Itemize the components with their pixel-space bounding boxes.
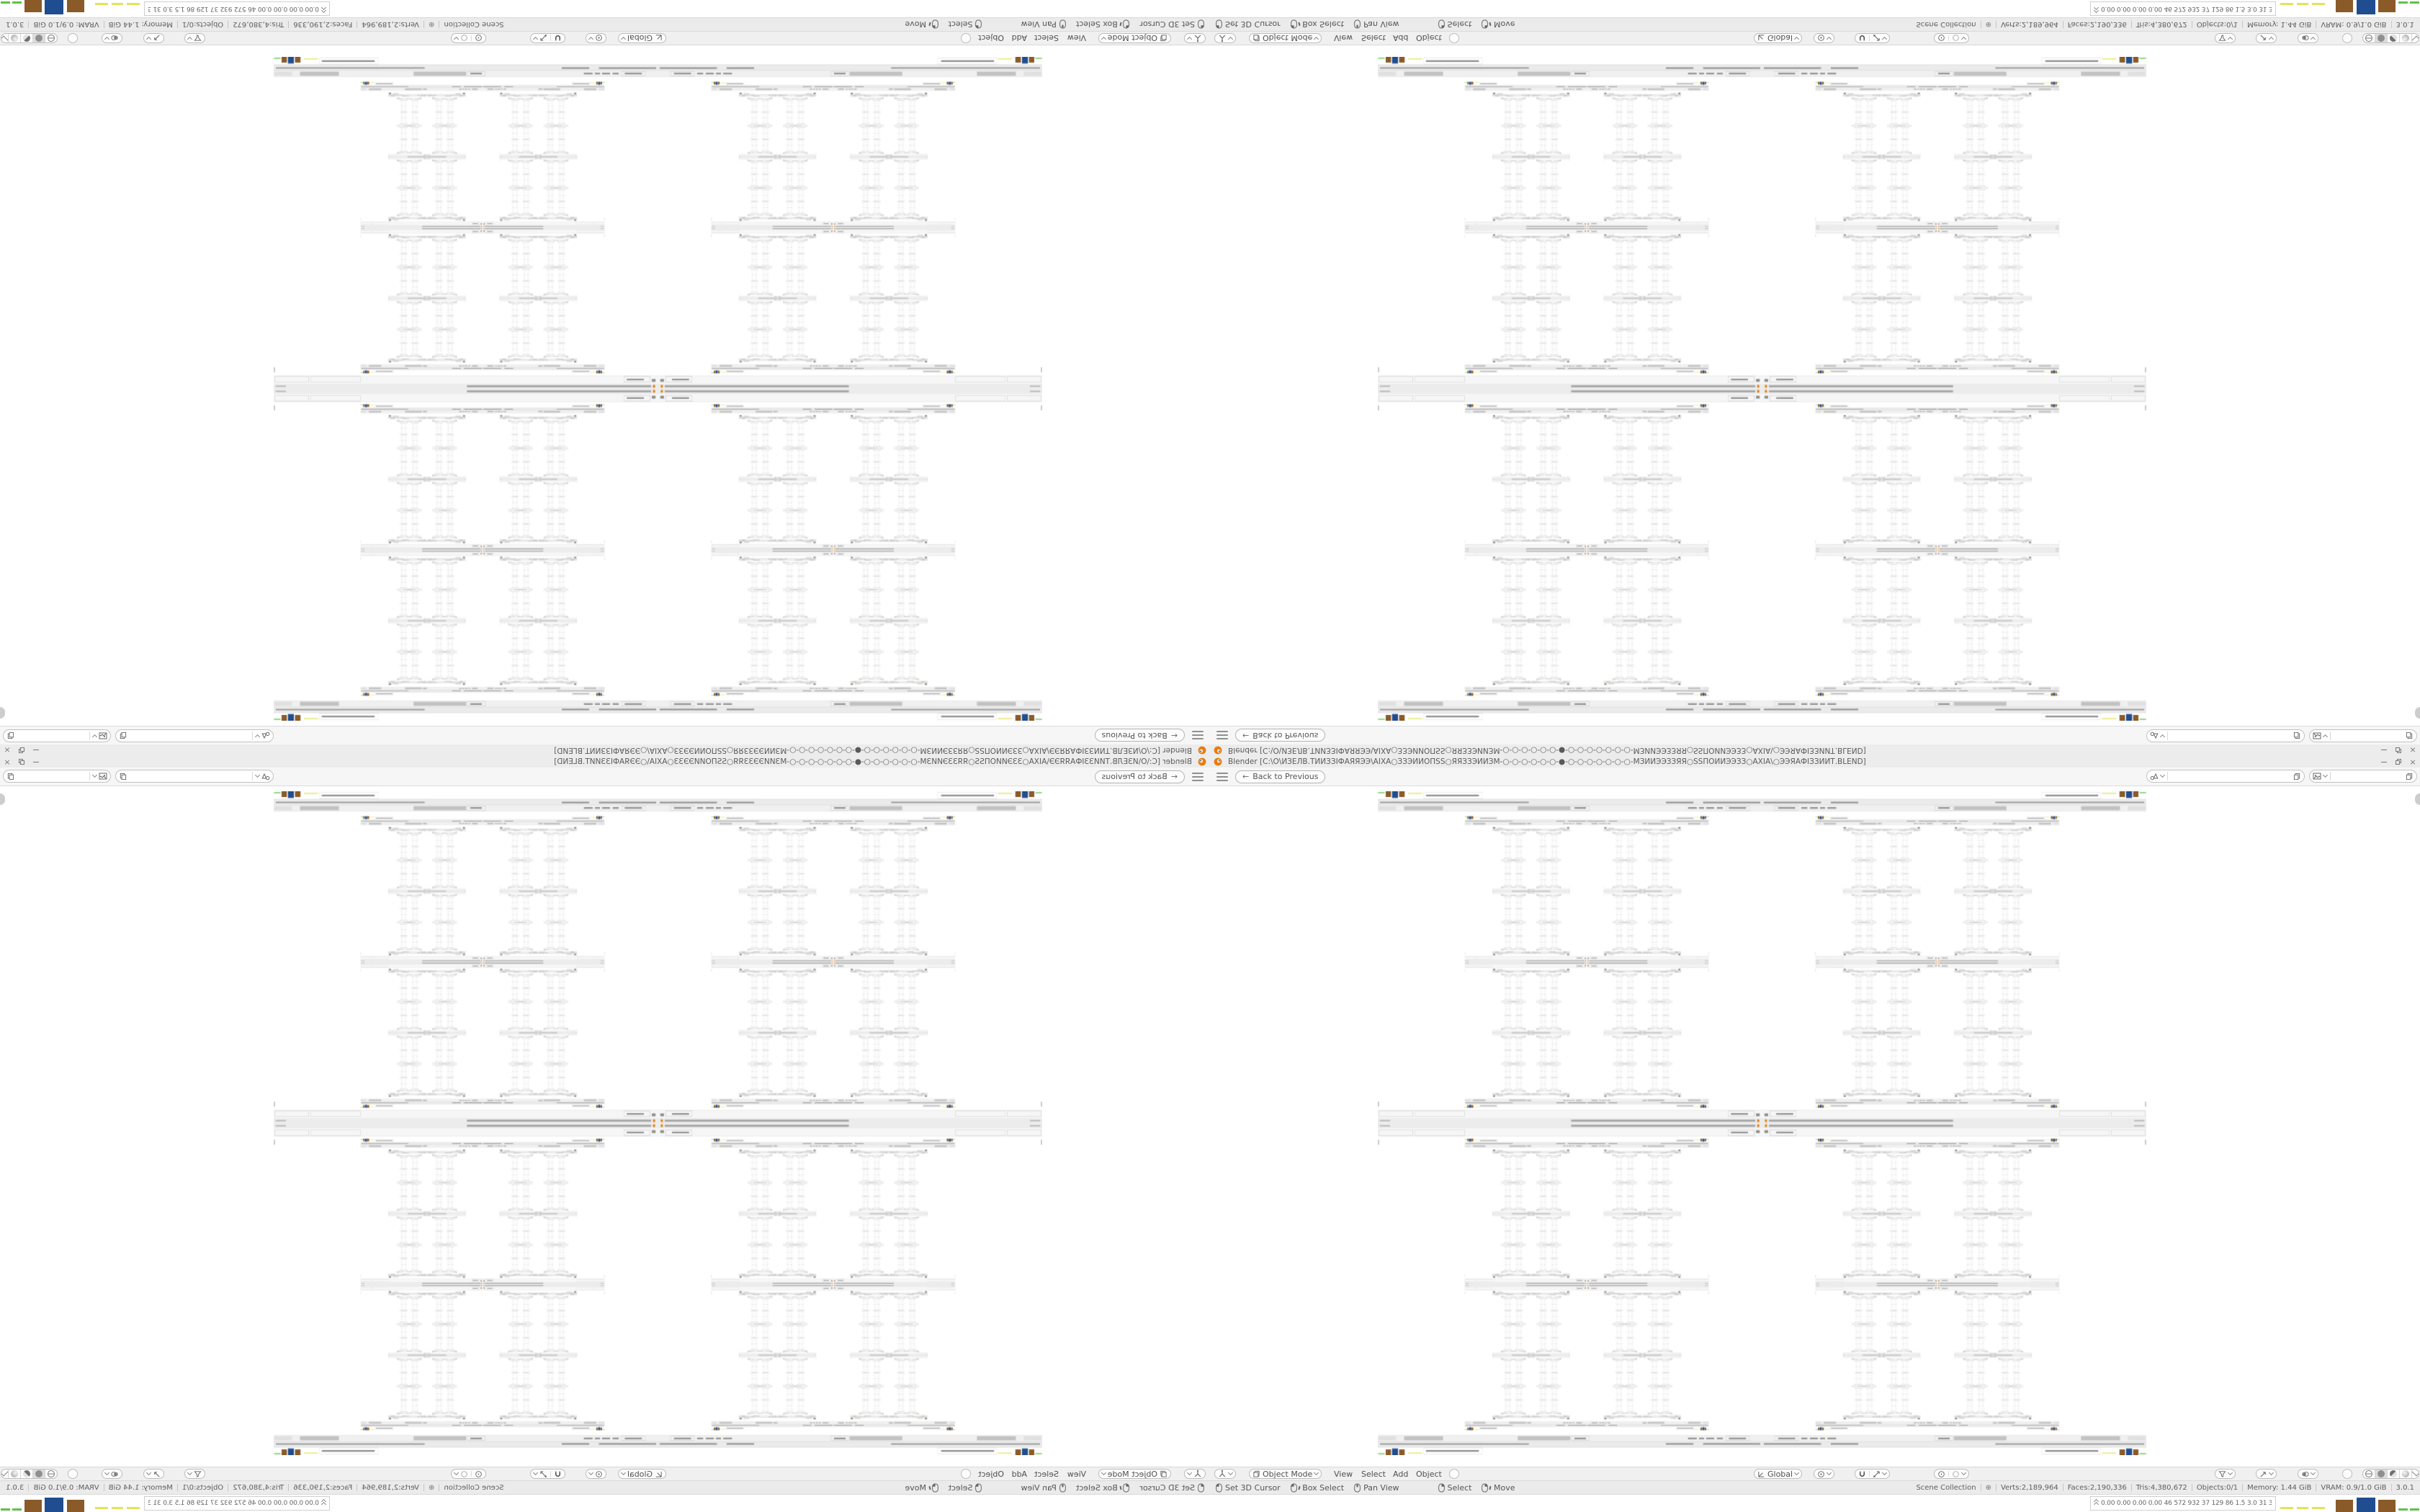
viewport-3d[interactable]	[0, 786, 1210, 1467]
hint-pan-view: Pan View	[1354, 20, 1399, 30]
menu-hamburger-icon[interactable]	[1216, 773, 1228, 781]
sidebar-collapsed-tab[interactable]	[2415, 707, 2420, 719]
status-bar: Set 3D Cursor Box Select Pan View Select	[0, 1480, 1210, 1494]
kaleidoscope-page: Blender [C:\O\ИЗЕЛВ.ТИИЗЗІФАЯЯЭЭ\АІХА○ЗЗ…	[0, 0, 2420, 1512]
xray-toggle[interactable]	[68, 1469, 78, 1479]
pivot-icon	[595, 35, 603, 42]
minimize-icon	[2381, 762, 2387, 762]
viewport-3d[interactable]	[1210, 786, 2420, 1467]
show-gizmos-dropdown[interactable]	[2256, 33, 2277, 43]
restore-button[interactable]	[2391, 745, 2406, 755]
taskbar-yellow-mark	[2312, 3, 2325, 5]
menu-object[interactable]: Object	[1416, 33, 1442, 42]
menu-object[interactable]: Object	[978, 1470, 1004, 1479]
hint-pan-view: Pan View	[1021, 1483, 1065, 1493]
annotation-circle-button[interactable]	[1449, 33, 1459, 43]
taskbar-app-icon[interactable]	[2336, 0, 2353, 12]
system-monitor-numbers: 0.00 0.00 0.00 0.00 46 572 932 37 129 86…	[2101, 5, 2272, 12]
chevron-down-icon	[1101, 1470, 1106, 1475]
chevron-down-icon	[454, 1470, 459, 1475]
taskbar-app-icon[interactable]	[2357, 0, 2375, 14]
stat-tris: Tris:4,380,672	[2136, 21, 2187, 29]
stat-memory: Memory: 1.44 GiB	[2247, 1484, 2311, 1492]
chevron-down-icon[interactable]	[2412, 36, 2419, 43]
taskbar-green-mark	[12, 1508, 22, 1511]
mode-dropdown[interactable]: Object Mode	[1098, 33, 1171, 43]
show-overlays-dropdown[interactable]	[102, 1469, 122, 1479]
minimize-button[interactable]	[2377, 757, 2391, 767]
snapping-group[interactable]	[530, 1469, 565, 1479]
drag-tick-icon	[1298, 1485, 1300, 1489]
stat-verts: Verts:2,189,964	[362, 21, 419, 29]
snapping-group[interactable]	[1855, 33, 1890, 43]
close-button[interactable]: ×	[2406, 745, 2420, 755]
proportional-editing-icon	[475, 35, 483, 42]
drag-tick-icon	[1120, 22, 1122, 26]
material-sphere-icon	[2390, 35, 2397, 42]
menu-view[interactable]: View	[1334, 1470, 1353, 1479]
shading-material-button[interactable]	[2388, 33, 2400, 43]
object-mode-icon	[1160, 1470, 1168, 1478]
scene-icon	[2150, 732, 2159, 740]
menu-select[interactable]: Select	[1361, 33, 1386, 42]
proportional-editing-group[interactable]	[1934, 1469, 1969, 1479]
rendered-sphere-icon	[2402, 35, 2409, 42]
mouse-right-drag-icon	[932, 1483, 938, 1493]
viewport-editor-icon	[1218, 1470, 1227, 1478]
chevron-down-icon	[1961, 1470, 1966, 1475]
view-layer-icon	[2313, 732, 2321, 740]
recursive-screenshot-pattern	[1378, 791, 2146, 1455]
back-arrow-icon: ←	[1242, 731, 1249, 740]
xray-toggle[interactable]	[2342, 33, 2352, 43]
view-object-types-dropdown[interactable]	[184, 1469, 205, 1479]
copy-icon[interactable]	[119, 773, 127, 780]
chevron-down-icon	[104, 1470, 109, 1475]
system-monitor-numbers: 0.00 0.00 0.00 0.00 46 572 932 37 129 86…	[148, 1500, 319, 1507]
quadrant-bottom-left-mirrored: Blender [C:\O\ИЗЕЛВ.ТИИЗЗІФАЯЯЭЭ\АІХА○ЗЗ…	[0, 756, 1210, 1512]
system-monitor-numbers: 0.00 0.00 0.00 0.00 46 572 932 37 129 86…	[148, 5, 319, 12]
shading-material-button[interactable]	[20, 33, 32, 43]
rendered-sphere-icon	[11, 1470, 18, 1477]
menu-select[interactable]: Select	[1034, 1470, 1059, 1479]
sidebar-collapsed-tab[interactable]	[0, 793, 5, 805]
double-chevron-up-icon[interactable]	[322, 1501, 326, 1506]
chevron-down-icon	[2228, 1470, 2233, 1475]
stat-scene-collection: Scene Collection	[444, 1484, 503, 1492]
snap-target-icon	[539, 1470, 547, 1478]
chevron-down-icon	[1961, 37, 1966, 42]
material-sphere-icon	[23, 35, 30, 42]
chevron-down-icon	[2323, 773, 2328, 778]
shading-wireframe-button[interactable]	[45, 33, 57, 43]
taskbar-green-mark	[2410, 1508, 2419, 1511]
view-object-types-dropdown[interactable]	[184, 33, 205, 43]
restore-button[interactable]	[14, 757, 29, 767]
show-gizmos-dropdown[interactable]	[143, 1469, 164, 1479]
scene-selector[interactable]	[2146, 729, 2305, 742]
taskbar-green-mark	[2398, 1, 2408, 4]
chevron-down-icon	[621, 1470, 626, 1475]
chevron-down-icon	[255, 734, 260, 739]
viewport-header: Object Mode View Select Add Object Globa…	[1210, 1467, 2420, 1480]
blender-logo-icon	[1198, 757, 1206, 766]
shading-rendered-button[interactable]	[8, 33, 20, 43]
chevron-down-icon	[2311, 1470, 2316, 1475]
sidebar-collapsed-tab[interactable]	[0, 707, 5, 719]
title-bar: Blender [C:\O\ИЗЕЛВ.ТИИЗЗІФАЯЯЭЭ\АІХА○ЗЗ…	[0, 756, 1210, 768]
taskbar-app-icon[interactable]	[45, 1498, 63, 1512]
menu-view[interactable]: View	[1334, 33, 1353, 42]
show-overlays-dropdown[interactable]	[102, 33, 122, 43]
editor-type-dropdown[interactable]	[1184, 33, 1206, 43]
system-monitor-panel: 0.00 0.00 0.00 0.00 46 572 932 37 129 86…	[2090, 1496, 2276, 1511]
magnet-icon	[554, 1470, 562, 1478]
pivot-icon	[595, 1470, 603, 1478]
minimize-button[interactable]	[29, 757, 43, 767]
chevron-down-icon	[1882, 37, 1887, 42]
taskbar-green-mark	[1, 1, 10, 4]
shading-rendered-button[interactable]	[8, 1469, 20, 1479]
mouse-right-icon	[975, 1483, 982, 1493]
mouse-right-drag-icon	[1482, 1483, 1488, 1493]
copy-icon[interactable]	[2293, 773, 2301, 780]
view-object-types-dropdown[interactable]	[2215, 1469, 2236, 1479]
mode-dropdown[interactable]: Object Mode	[1249, 1469, 1322, 1479]
taskbar-green-mark	[2398, 1508, 2408, 1511]
magnet-icon	[1858, 1470, 1866, 1478]
overlays-icon	[2301, 35, 2309, 42]
mode-dropdown[interactable]: Object Mode	[1098, 1469, 1171, 1479]
chevron-down-icon	[1187, 37, 1192, 42]
copy-icon[interactable]	[2293, 732, 2301, 740]
back-to-previous-button[interactable]: ← Back to Previous	[1235, 770, 1325, 783]
taskbar-app-icon[interactable]	[45, 0, 63, 14]
back-to-previous-label: Back to Previous	[1252, 731, 1318, 740]
stat-vram: VRAM: 0.9/1.0 GiB	[2321, 1484, 2386, 1492]
snapping-group[interactable]	[1855, 1469, 1890, 1479]
orientation-label: Global	[627, 1470, 653, 1479]
scene-selector[interactable]	[2146, 770, 2305, 783]
object-mode-icon	[1160, 35, 1168, 42]
menu-object[interactable]: Object	[1416, 1470, 1442, 1479]
scene-stats: Scene Collection ⊕ Verts:2,189,964 Faces…	[1916, 21, 2414, 29]
taskbar-app-icon[interactable]	[24, 1500, 42, 1512]
chevron-down-icon	[92, 734, 97, 739]
hint-select: Select	[949, 20, 982, 30]
close-button[interactable]: ×	[0, 757, 14, 767]
menu-view[interactable]: View	[1067, 1470, 1086, 1479]
filter-funnel-icon	[194, 35, 202, 42]
close-button[interactable]: ×	[0, 745, 14, 755]
transform-orientation-dropdown[interactable]: Global	[1754, 1469, 1802, 1479]
chevron-down-icon[interactable]	[1, 1470, 9, 1477]
taskbar-app-icon[interactable]	[67, 1500, 84, 1512]
double-chevron-up-icon[interactable]	[2094, 1501, 2098, 1506]
annotation-circle-button[interactable]	[1449, 1469, 1459, 1479]
chevron-down-icon	[2228, 37, 2233, 42]
shading-material-button[interactable]	[2388, 1469, 2400, 1479]
hint-select: Select	[1438, 20, 1472, 30]
menu-add[interactable]: Add	[1012, 33, 1027, 42]
snapping-group[interactable]	[530, 33, 565, 43]
menu-add[interactable]: Add	[1393, 33, 1408, 42]
stat-scene-collection: Scene Collection	[1916, 21, 1976, 29]
annotation-circle-button[interactable]	[961, 33, 971, 43]
view-object-types-dropdown[interactable]	[2215, 33, 2236, 43]
show-overlays-dropdown[interactable]	[2298, 33, 2318, 43]
proportional-editing-group[interactable]	[451, 1469, 486, 1479]
hint-select: Select	[1438, 1483, 1472, 1493]
scene-selector[interactable]	[115, 729, 274, 742]
back-to-previous-button[interactable]: ← Back to Previous	[1095, 770, 1185, 783]
chevron-down-icon	[255, 773, 260, 778]
chevron-down-icon	[92, 773, 97, 778]
topbar: ← Back to Previous	[0, 726, 1210, 744]
viewport-editor-icon	[1193, 34, 1202, 42]
double-chevron-up-icon[interactable]	[2094, 6, 2098, 12]
minimize-button[interactable]	[2377, 745, 2391, 755]
copy-icon[interactable]	[2406, 773, 2414, 780]
taskbar-app-icon[interactable]	[2378, 1500, 2396, 1512]
mode-dropdown[interactable]: Object Mode	[1249, 33, 1322, 43]
hint-move: Move	[1482, 1483, 1515, 1493]
shading-wireframe-button[interactable]	[2363, 1469, 2375, 1479]
proportional-editing-icon	[475, 1470, 483, 1478]
restore-icon	[2396, 747, 2401, 753]
chevron-down-icon	[1228, 37, 1233, 42]
blender-logo-icon	[1214, 746, 1222, 755]
editor-type-dropdown[interactable]	[1214, 33, 1236, 43]
scene-stats: Scene Collection ⊕ Verts:2,189,964 Faces…	[1916, 1484, 2414, 1492]
snap-target-icon	[1873, 35, 1881, 42]
view-layer-name-field[interactable]	[17, 771, 86, 781]
stat-scene-collection: Scene Collection	[444, 21, 503, 29]
back-to-previous-button[interactable]: ← Back to Previous	[1235, 729, 1325, 742]
show-gizmos-dropdown[interactable]	[2256, 1469, 2277, 1479]
sidebar-collapsed-tab[interactable]	[2415, 793, 2420, 805]
view-layer-icon	[2313, 772, 2321, 780]
editor-type-dropdown[interactable]	[1184, 1469, 1206, 1479]
menu-view[interactable]: View	[1067, 33, 1086, 42]
restore-button[interactable]	[14, 745, 29, 755]
falloff-icon	[1952, 1470, 1960, 1478]
mouse-middle-icon	[1059, 20, 1066, 30]
shading-solid-button[interactable]	[32, 1469, 45, 1479]
stat-verts: Verts:2,189,964	[2001, 21, 2058, 29]
shading-rendered-button[interactable]	[2400, 33, 2412, 43]
stat-memory: Memory: 1.44 GiB	[2247, 21, 2311, 29]
drag-tick-icon	[1120, 1485, 1122, 1489]
double-chevron-up-icon[interactable]	[322, 6, 326, 12]
xray-toggle[interactable]	[68, 33, 78, 43]
xray-toggle[interactable]	[2342, 1469, 2352, 1479]
pivot-point-dropdown[interactable]	[1814, 1469, 1834, 1479]
taskbar-yellow-mark	[2297, 1507, 2308, 1509]
scene-name-field[interactable]	[2171, 771, 2291, 781]
copy-icon[interactable]	[6, 773, 14, 780]
copy-icon[interactable]	[2406, 732, 2414, 740]
proportional-editing-group[interactable]	[1934, 33, 1969, 43]
title-bar: Blender [C:\O\ИЗЕЛВ.ТИИЗЗІФАЯЯЭЭ\АІХА○ЗЗ…	[1210, 756, 2420, 768]
view-layer-selector[interactable]	[2309, 770, 2417, 783]
chevron-down-icon	[621, 37, 626, 42]
stat-faces: Faces:2,190,336	[2068, 1484, 2127, 1492]
material-sphere-icon	[23, 1470, 30, 1477]
mouse-right-icon	[1438, 1483, 1445, 1493]
scene-name-field[interactable]	[2171, 731, 2291, 741]
overlays-icon	[111, 35, 119, 42]
taskbar-yellow-mark	[112, 3, 123, 5]
view-layer-selector[interactable]	[3, 729, 111, 742]
shading-solid-button[interactable]	[2375, 1469, 2388, 1479]
annotation-circle-button[interactable]	[961, 1469, 971, 1479]
menu-object[interactable]: Object	[978, 33, 1004, 42]
stat-verts: Verts:2,189,964	[2001, 1484, 2058, 1492]
chevron-down-icon[interactable]	[1, 36, 9, 43]
solid-sphere-icon	[2378, 35, 2385, 42]
menu-hamburger-icon[interactable]	[1216, 732, 1228, 740]
viewport-header: Object Mode View Select Add Object Globa…	[1210, 32, 2420, 45]
taskbar-app-icon[interactable]	[24, 0, 42, 12]
view-layer-icon	[99, 732, 107, 740]
quadrant-top-left-mirrored: Blender [C:\O\ИЗЕЛВ.ТИИЗЗІФАЯЯЭЭ\АІХА○ЗЗ…	[0, 0, 1210, 756]
chevron-down-icon	[1228, 1470, 1233, 1475]
close-button[interactable]: ×	[2406, 757, 2420, 767]
transform-orientation-dropdown[interactable]: Global	[618, 1469, 666, 1479]
taskbar-app-icon[interactable]	[2378, 0, 2396, 12]
transform-orientation-dropdown[interactable]: Global	[1754, 33, 1802, 43]
filter-funnel-icon	[194, 1470, 202, 1478]
orientation-label: Global	[1767, 34, 1793, 43]
solid-sphere-icon	[35, 35, 42, 42]
taskbar-app-icon[interactable]	[2336, 1500, 2353, 1512]
stat-faces: Faces:2,190,336	[293, 1484, 352, 1492]
transform-orientation-dropdown[interactable]: Global	[618, 33, 666, 43]
view-layer-selector[interactable]	[2309, 729, 2417, 742]
chevron-down-icon[interactable]	[2412, 1470, 2419, 1477]
pivot-point-dropdown[interactable]	[1814, 33, 1834, 43]
pivot-point-dropdown[interactable]	[586, 33, 606, 43]
displays-icon: ⊕	[1986, 1484, 1991, 1492]
shading-solid-button[interactable]	[32, 33, 45, 43]
hint-set-3d-cursor: Set 3D Cursor	[1216, 1483, 1281, 1493]
orientation-axes-icon	[655, 1470, 663, 1478]
menu-select[interactable]: Select	[1034, 33, 1059, 42]
view-layer-name-field[interactable]	[17, 731, 86, 741]
window-controls: ×	[0, 745, 43, 755]
scene-name-field[interactable]	[129, 771, 249, 781]
shading-material-button[interactable]	[20, 1469, 32, 1479]
window-controls: ×	[2377, 757, 2420, 767]
wireframe-sphere-icon	[48, 35, 55, 42]
copy-icon[interactable]	[6, 732, 14, 740]
overlays-icon	[111, 1470, 119, 1478]
pivot-icon	[1817, 35, 1825, 42]
hint-box-select: Box Select	[1291, 20, 1344, 30]
topbar: ← Back to Previous	[1210, 768, 2420, 786]
drag-tick-icon	[928, 1485, 931, 1489]
menu-select[interactable]: Select	[1361, 1470, 1386, 1479]
view-layer-name-field[interactable]	[2334, 771, 2403, 781]
taskbar-app-icon[interactable]	[67, 0, 84, 12]
chevron-down-icon	[1794, 1470, 1799, 1475]
stat-verts: Verts:2,189,964	[362, 1484, 419, 1492]
menu-hamburger-icon[interactable]	[1192, 732, 1204, 740]
back-arrow-icon: ←	[1171, 772, 1178, 781]
chevron-down-icon	[2160, 734, 2165, 739]
hint-pan-view: Pan View	[1021, 20, 1065, 30]
title-bar: Blender [C:\O\ИЗЕЛВ.ТИИЗЗІФАЯЯЭЭ\АІХА○ЗЗ…	[1210, 744, 2420, 756]
taskbar-app-icon[interactable]	[2357, 1498, 2375, 1512]
menu-add[interactable]: Add	[1393, 1470, 1408, 1479]
orientation-axes-icon	[655, 35, 663, 42]
view-layer-name-field[interactable]	[2334, 731, 2403, 741]
falloff-icon	[460, 35, 468, 42]
pivot-icon	[1817, 1470, 1825, 1478]
view-layer-selector[interactable]	[3, 770, 111, 783]
taskbar-yellow-mark	[95, 3, 108, 5]
menu-hamburger-icon[interactable]	[1192, 773, 1204, 781]
scene-selector[interactable]	[115, 770, 274, 783]
drag-tick-icon	[928, 22, 931, 26]
object-mode-icon	[1252, 1470, 1260, 1478]
show-overlays-dropdown[interactable]	[2298, 1469, 2318, 1479]
minimize-button[interactable]	[29, 745, 43, 755]
gizmo-arrow-icon	[153, 1470, 161, 1478]
chevron-down-icon	[146, 37, 151, 42]
taskbar-yellow-mark	[2312, 1507, 2325, 1509]
displays-icon: ⊕	[429, 21, 434, 29]
system-strip: 0.00 0.00 0.00 0.00 46 572 932 37 129 86…	[1210, 1494, 2420, 1512]
scene-icon	[261, 732, 270, 740]
system-monitor-panel: 0.00 0.00 0.00 0.00 46 572 932 37 129 86…	[144, 1496, 330, 1511]
orientation-axes-icon	[1757, 35, 1765, 42]
shading-wireframe-button[interactable]	[45, 1469, 57, 1479]
back-to-previous-button[interactable]: ← Back to Previous	[1095, 729, 1185, 742]
window-title: Blender [C:\O\ИЗЕЛВ.ТИИЗЗІФАЯЯЭЭ\АІХА○ЗЗ…	[43, 757, 1192, 766]
viewport-3d[interactable]	[0, 45, 1210, 726]
chevron-down-icon	[533, 37, 538, 42]
scene-icon	[261, 772, 270, 780]
copy-icon[interactable]	[119, 732, 127, 740]
shading-solid-button[interactable]	[2375, 33, 2388, 43]
rendered-sphere-icon	[2402, 1470, 2409, 1477]
shading-mode-group	[2362, 1469, 2419, 1479]
restore-icon	[19, 759, 24, 765]
back-to-previous-label: Back to Previous	[1102, 731, 1168, 740]
menu-add[interactable]: Add	[1012, 1470, 1027, 1479]
viewport-editor-icon	[1193, 1470, 1202, 1478]
mouse-right-drag-icon	[1482, 20, 1488, 30]
proportional-editing-group[interactable]	[451, 33, 486, 43]
hint-pan-view: Pan View	[1354, 1483, 1399, 1493]
viewport-3d[interactable]	[1210, 45, 2420, 726]
taskbar-green-mark	[12, 1, 22, 4]
editor-type-dropdown[interactable]	[1214, 1469, 1236, 1479]
status-bar: Set 3D Cursor Box Select Pan View Select	[1210, 18, 2420, 32]
viewport-header: Object Mode View Select Add Object Globa…	[0, 32, 1210, 45]
pivot-point-dropdown[interactable]	[586, 1469, 606, 1479]
shading-rendered-button[interactable]	[2400, 1469, 2412, 1479]
shading-wireframe-button[interactable]	[2363, 33, 2375, 43]
mouse-left-icon	[1216, 1483, 1222, 1493]
restore-button[interactable]	[2391, 757, 2406, 767]
chevron-down-icon	[588, 1470, 593, 1475]
show-gizmos-dropdown[interactable]	[143, 33, 164, 43]
taskbar-yellow-mark	[127, 1507, 140, 1509]
scene-name-field[interactable]	[129, 731, 249, 741]
